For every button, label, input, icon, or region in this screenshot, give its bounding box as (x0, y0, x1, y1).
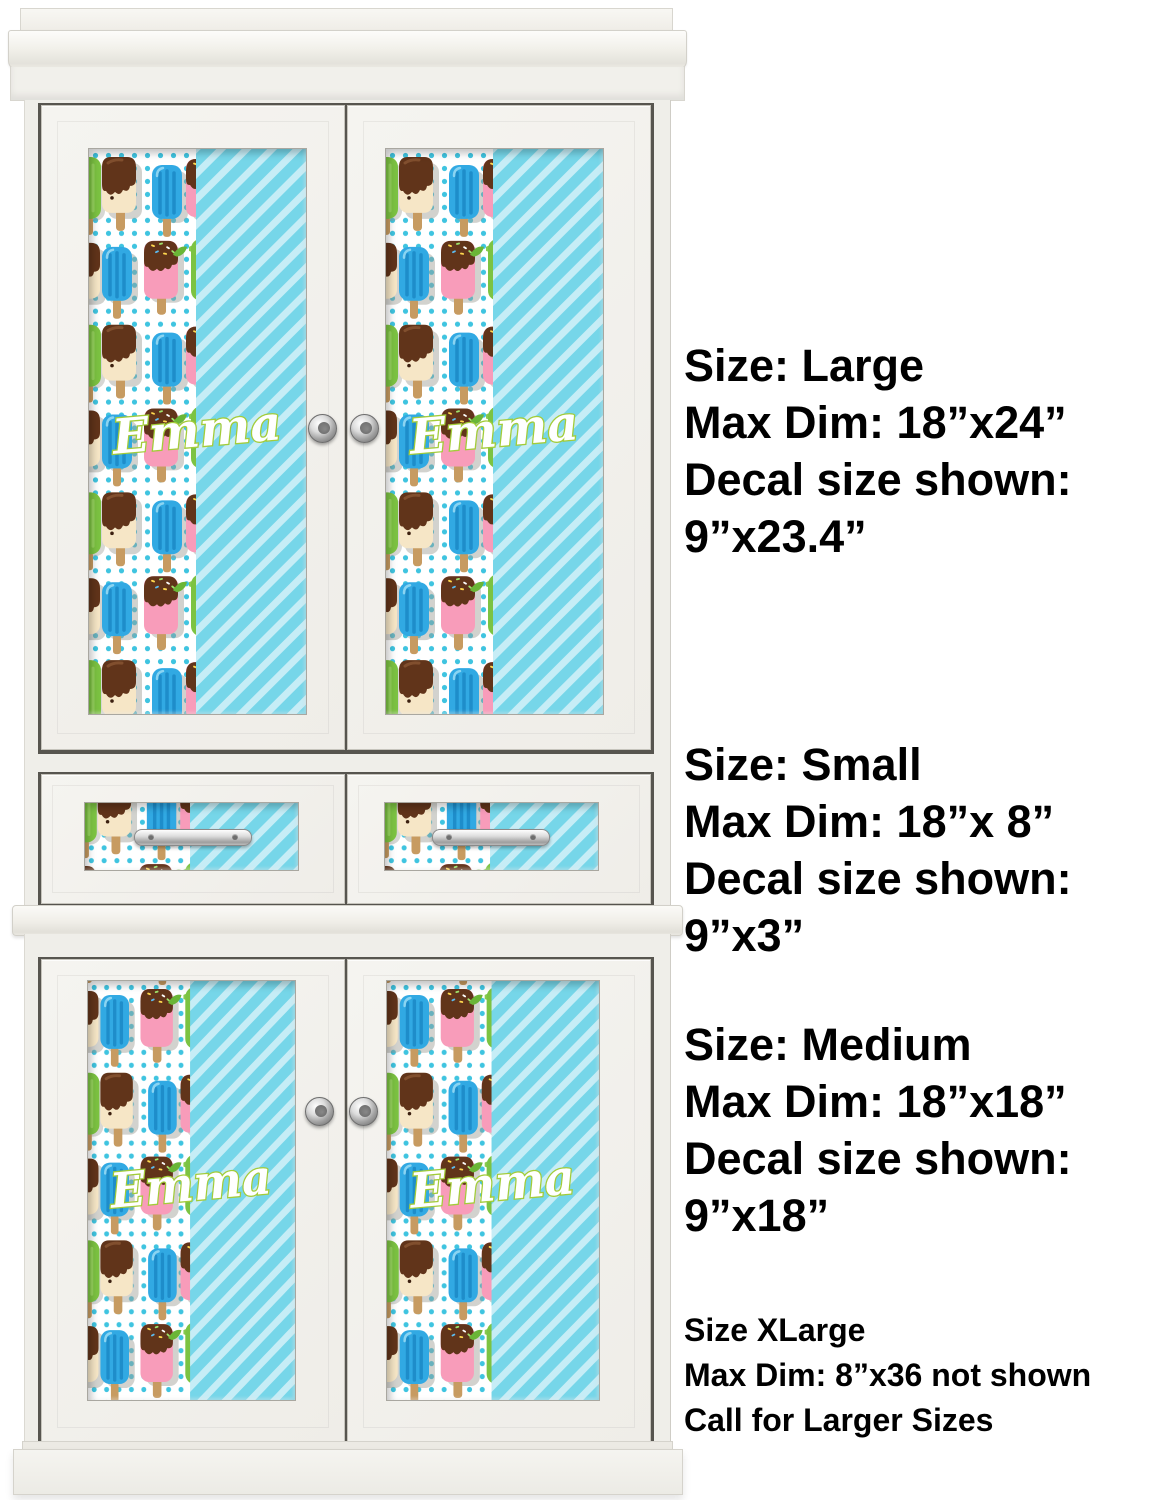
size-info-line: Decal size shown: (684, 850, 1072, 907)
upper-right-door: Emma (347, 105, 651, 750)
size-info-line: Call for Larger Sizes (684, 1398, 1091, 1443)
upper-left-door-panel: Emma (88, 148, 307, 715)
size-info-line: Size: Small (684, 736, 1072, 793)
size-info-line: Size XLarge (684, 1308, 1091, 1353)
upper-right-door-knob (350, 414, 379, 443)
size-info-block-xlarge: Size XLarge Max Dim: 8”x36 not shown Cal… (684, 1308, 1091, 1443)
upper-left-door-knob (308, 414, 337, 443)
mid-molding (12, 905, 683, 936)
size-info-line: Size: Medium (684, 1016, 1072, 1073)
upper-left-door: Emma (41, 105, 345, 750)
size-info-block-small: Size: Small Max Dim: 18”x 8” Decal size … (684, 736, 1072, 964)
lower-right-door-knob (349, 1097, 378, 1126)
size-info-block-large: Size: Large Max Dim: 18”x24” Decal size … (684, 337, 1072, 565)
door-decal-large: Emma (386, 149, 603, 714)
size-info-line: 9”x23.4” (684, 508, 1072, 565)
crown-band (10, 67, 685, 101)
size-info-line: Max Dim: 18”x24” (684, 394, 1072, 451)
size-info-line: Max Dim: 18”x 8” (684, 793, 1072, 850)
base-plinth (13, 1449, 683, 1495)
size-info-line: Max Dim: 8”x36 not shown (684, 1353, 1091, 1398)
upper-right-door-panel: Emma (385, 148, 604, 715)
right-drawer-handle (432, 829, 550, 846)
size-info-line: Size: Large (684, 337, 1072, 394)
size-info-line: 9”x18” (684, 1187, 1072, 1244)
left-drawer-handle (134, 829, 252, 846)
size-info-line: 9”x3” (684, 907, 1072, 964)
lower-right-door: Emma (347, 959, 651, 1444)
size-info-line: Decal size shown: (684, 1130, 1072, 1187)
lower-left-door-knob (305, 1097, 334, 1126)
door-decal-medium: Emma (88, 981, 295, 1400)
size-info-line: Decal size shown: (684, 451, 1072, 508)
door-decal-large: Emma (89, 149, 306, 714)
size-info-block-medium: Size: Medium Max Dim: 18”x18” Decal size… (684, 1016, 1072, 1244)
crown-molding (8, 30, 687, 70)
door-decal-medium: Emma (387, 981, 599, 1400)
lower-right-door-panel: Emma (386, 980, 600, 1401)
lower-left-door: Emma (41, 959, 345, 1444)
product-mockup-image: Emma Emma Emma (0, 0, 1151, 1500)
lower-left-door-panel: Emma (87, 980, 296, 1401)
size-info-line: Max Dim: 18”x18” (684, 1073, 1072, 1130)
